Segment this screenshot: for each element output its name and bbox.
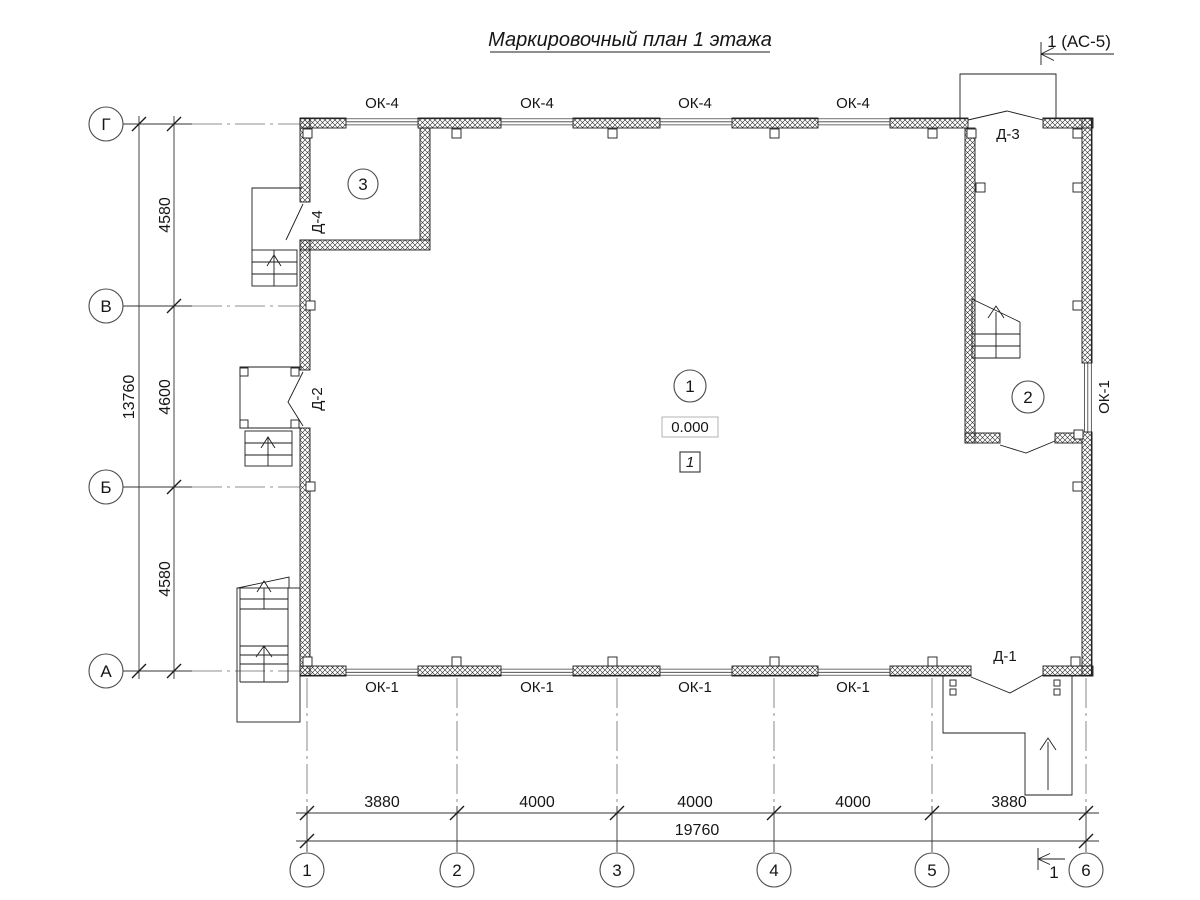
axis-label-v: В: [100, 297, 111, 316]
axis-label-1: 1: [302, 861, 311, 880]
room-number: 2: [1023, 388, 1032, 407]
dim-bottom-seg1: 3880: [364, 794, 400, 811]
window-label: ОК-1: [520, 679, 554, 696]
column-mark: [306, 482, 315, 491]
wall-segment: [732, 118, 818, 128]
window-label: ОК-1: [1096, 380, 1113, 414]
door-frame-mark: [950, 680, 956, 686]
section-mark-top-label: 1 (АС-5): [1047, 32, 1111, 51]
dim-left-total: 13760: [121, 375, 138, 420]
window-label: ОК-4: [520, 95, 554, 112]
axis-label-a: А: [100, 662, 112, 681]
door-d2: Д-2: [240, 367, 326, 466]
porch-steps-arrow-icon: [245, 437, 292, 466]
wall-segment: [890, 666, 971, 676]
section-mark-bottom-label: 1: [1049, 863, 1058, 882]
dimensions-left: 4580 4600 4580 13760: [121, 116, 181, 679]
dim-left-seg1: 4580: [157, 197, 174, 233]
floor-plan-page: Маркировочный план 1 этажа 1 (АС-5) 1 Г …: [0, 0, 1200, 900]
wall-segment: [1082, 118, 1092, 363]
elevation-mark: 0.000 1: [662, 417, 718, 472]
elevation-value: 0.000: [671, 419, 709, 436]
column-mark: [770, 129, 779, 138]
door-label: Д-1: [993, 648, 1017, 665]
ramp-arrow-icon: [1040, 738, 1056, 790]
window-label: ОК-1: [678, 679, 712, 696]
wall-segment: [1082, 432, 1092, 676]
axis-label-g: Г: [101, 115, 110, 134]
room3-wall-horizontal: [300, 240, 430, 250]
window-label: ОК-4: [678, 95, 712, 112]
axis-label-6: 6: [1081, 861, 1090, 880]
entrance-porch: [943, 676, 1072, 795]
section-mark-top: 1 (АС-5): [1041, 32, 1114, 65]
entrance-porch: [252, 188, 302, 250]
column-mark: [608, 657, 617, 666]
dim-left-seg2: 4600: [157, 379, 174, 415]
door-swing-icon: [971, 675, 1043, 693]
porch-steps: [245, 431, 292, 466]
wall-segment: [573, 666, 660, 676]
column-mark: [1073, 129, 1082, 138]
column-mark: [770, 657, 779, 666]
stair-flights: [238, 577, 289, 682]
room3-wall-vertical: [420, 128, 430, 240]
porch-post: [240, 368, 248, 376]
room2-inner-door: [1000, 441, 1055, 453]
window-label: ОК-1: [365, 679, 399, 696]
column-mark: [928, 657, 937, 666]
door-swing-icon: [1000, 441, 1055, 453]
window-label: ОК-4: [365, 95, 399, 112]
axis-dashdot-lines: [192, 124, 300, 671]
axis-label-2: 2: [452, 861, 461, 880]
column-mark: [976, 183, 985, 192]
axis-label-3: 3: [612, 861, 621, 880]
window-right: ОК-1: [1085, 363, 1113, 432]
dim-bottom-total: 19760: [675, 822, 720, 839]
door-swing-icon: [968, 111, 1043, 120]
drawing-title: Маркировочный план 1 этажа: [488, 29, 772, 52]
dim-bottom-seg2: 4000: [519, 794, 555, 811]
column-mark: [452, 657, 461, 666]
dim-bottom-seg5: 3880: [991, 794, 1027, 811]
wall-segment: [732, 666, 818, 676]
door-label: Д-4: [309, 210, 326, 234]
column-mark: [1071, 657, 1080, 666]
door-frame-mark: [950, 689, 956, 695]
porch-post: [291, 368, 299, 376]
column-mark: [303, 129, 312, 138]
column-mark: [608, 129, 617, 138]
column-mark: [452, 129, 461, 138]
room-number: 1: [685, 377, 694, 396]
door-label: Д-2: [309, 387, 326, 411]
axis-label-4: 4: [769, 861, 778, 880]
door-swing-icon: [286, 204, 303, 240]
plan-note-value: 1: [686, 454, 694, 471]
porch-steps-arrow-icon: [252, 250, 297, 286]
section-mark-bottom: 1: [1038, 848, 1065, 882]
window-glazing-lines: [1085, 363, 1088, 432]
dimensions-bottom: 3880 4000 4000 4000 3880 19760: [296, 794, 1099, 848]
stair-flight: [972, 298, 1020, 358]
wall-segment: [418, 118, 501, 128]
stair-exterior-left: [237, 577, 300, 722]
room-number: 3: [358, 175, 367, 194]
column-mark: [928, 129, 937, 138]
dim-left-seg3: 4580: [157, 561, 174, 597]
axis-dashdot-lines: [307, 678, 1086, 806]
column-mark: [1073, 183, 1082, 192]
grid-axes-bottom: 1 2 3 4 5 6: [290, 678, 1103, 887]
room-tags: 1 2 3: [348, 169, 1044, 413]
column-mark: [303, 657, 312, 666]
dim-bottom-seg3: 4000: [677, 794, 713, 811]
axis-label-b: Б: [100, 478, 111, 497]
window-label: ОК-4: [836, 95, 870, 112]
stair-room2: [972, 298, 1020, 358]
column-mark: [306, 301, 315, 310]
wall-segment: [418, 666, 501, 676]
axis-label-5: 5: [927, 861, 936, 880]
wall-segment: [573, 118, 660, 128]
door-d4: Д-4: [252, 188, 326, 286]
page-title: Маркировочный план 1 этажа: [488, 29, 772, 51]
wall-segment: [890, 118, 968, 128]
door-label: Д-3: [996, 126, 1020, 143]
porch-post: [240, 420, 248, 428]
column-mark: [1073, 482, 1082, 491]
column-mark: [1074, 430, 1083, 439]
window-label: ОК-1: [836, 679, 870, 696]
door-swing-icon: [288, 372, 303, 426]
floor-plan-drawing: Маркировочный план 1 этажа 1 (АС-5) 1 Г …: [0, 0, 1200, 900]
column-mark: [967, 129, 976, 138]
door-frame-mark: [1054, 689, 1060, 695]
dim-bottom-seg4: 4000: [835, 794, 871, 811]
porch-post: [291, 420, 299, 428]
door-frame-mark: [1054, 680, 1060, 686]
column-mark: [1073, 301, 1082, 310]
room2-wall-vertical: [965, 128, 975, 443]
wall-segment: [300, 428, 310, 676]
room2-wall-bottom-left: [965, 433, 1000, 443]
